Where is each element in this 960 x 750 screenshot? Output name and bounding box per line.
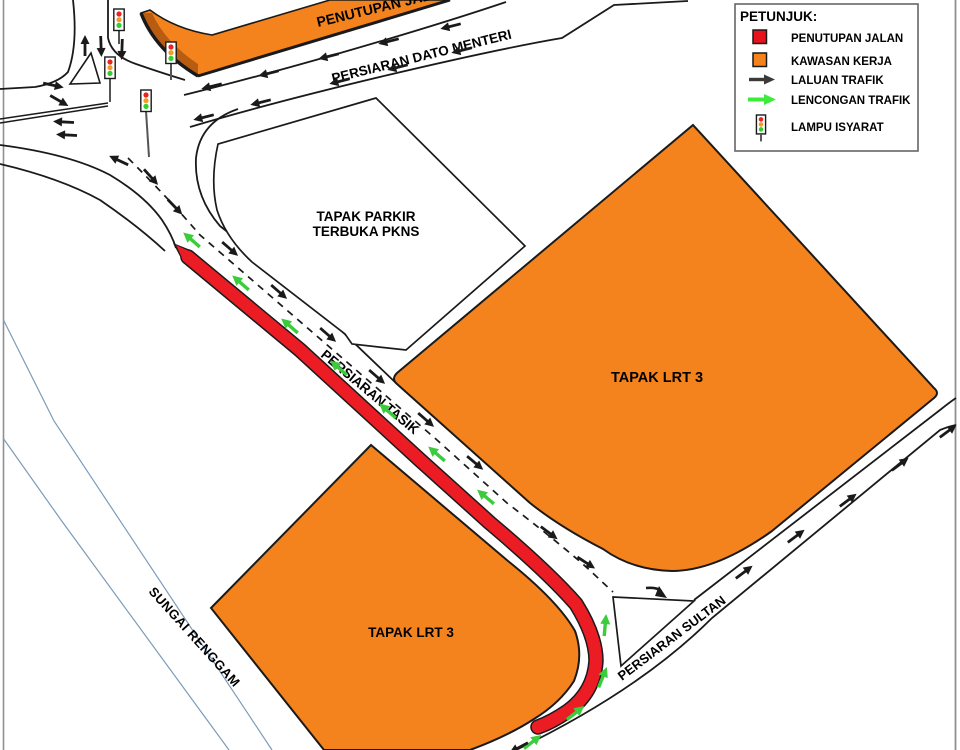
- svg-text:KAWASAN KERJA: KAWASAN KERJA: [791, 56, 892, 68]
- svg-text:TAPAK LRT 3: TAPAK LRT 3: [368, 625, 454, 640]
- svg-text:TAPAK LRT 3: TAPAK LRT 3: [611, 370, 703, 386]
- svg-text:LAMPU ISYARAT: LAMPU ISYARAT: [791, 122, 884, 134]
- svg-text:PENUTUPAN JALAN: PENUTUPAN JALAN: [791, 33, 903, 45]
- svg-text:PETUNJUK:: PETUNJUK:: [740, 9, 817, 24]
- svg-text:LENCONGAN TRAFIK: LENCONGAN TRAFIK: [791, 95, 911, 107]
- svg-text:LALUAN TRAFIK: LALUAN TRAFIK: [791, 75, 884, 87]
- svg-text:TERBUKA PKNS: TERBUKA PKNS: [313, 224, 420, 239]
- svg-text:TAPAK PARKIR: TAPAK PARKIR: [317, 209, 416, 224]
